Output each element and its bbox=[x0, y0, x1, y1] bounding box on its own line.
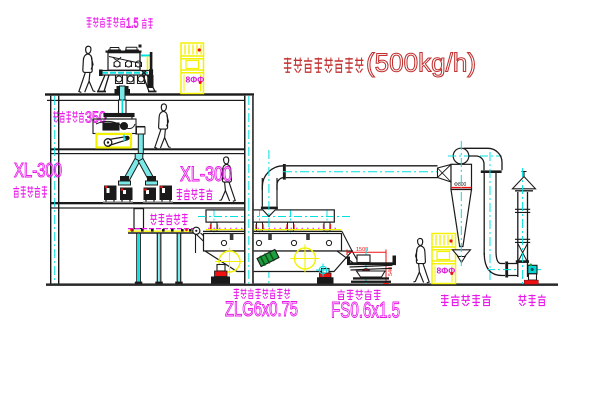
svg-text:XL-300: XL-300 bbox=[14, 160, 62, 182]
svg-text:XL-300: XL-300 bbox=[180, 163, 232, 186]
svg-text:FS0.6x1.5: FS0.6x1.5 bbox=[331, 298, 400, 323]
svg-text:Φ800: Φ800 bbox=[454, 182, 467, 188]
svg-text:ZLG6x0.75: ZLG6x0.75 bbox=[225, 298, 298, 321]
svg-text:1.5: 1.5 bbox=[126, 15, 139, 31]
svg-text:(500kg/h): (500kg/h) bbox=[366, 48, 476, 78]
